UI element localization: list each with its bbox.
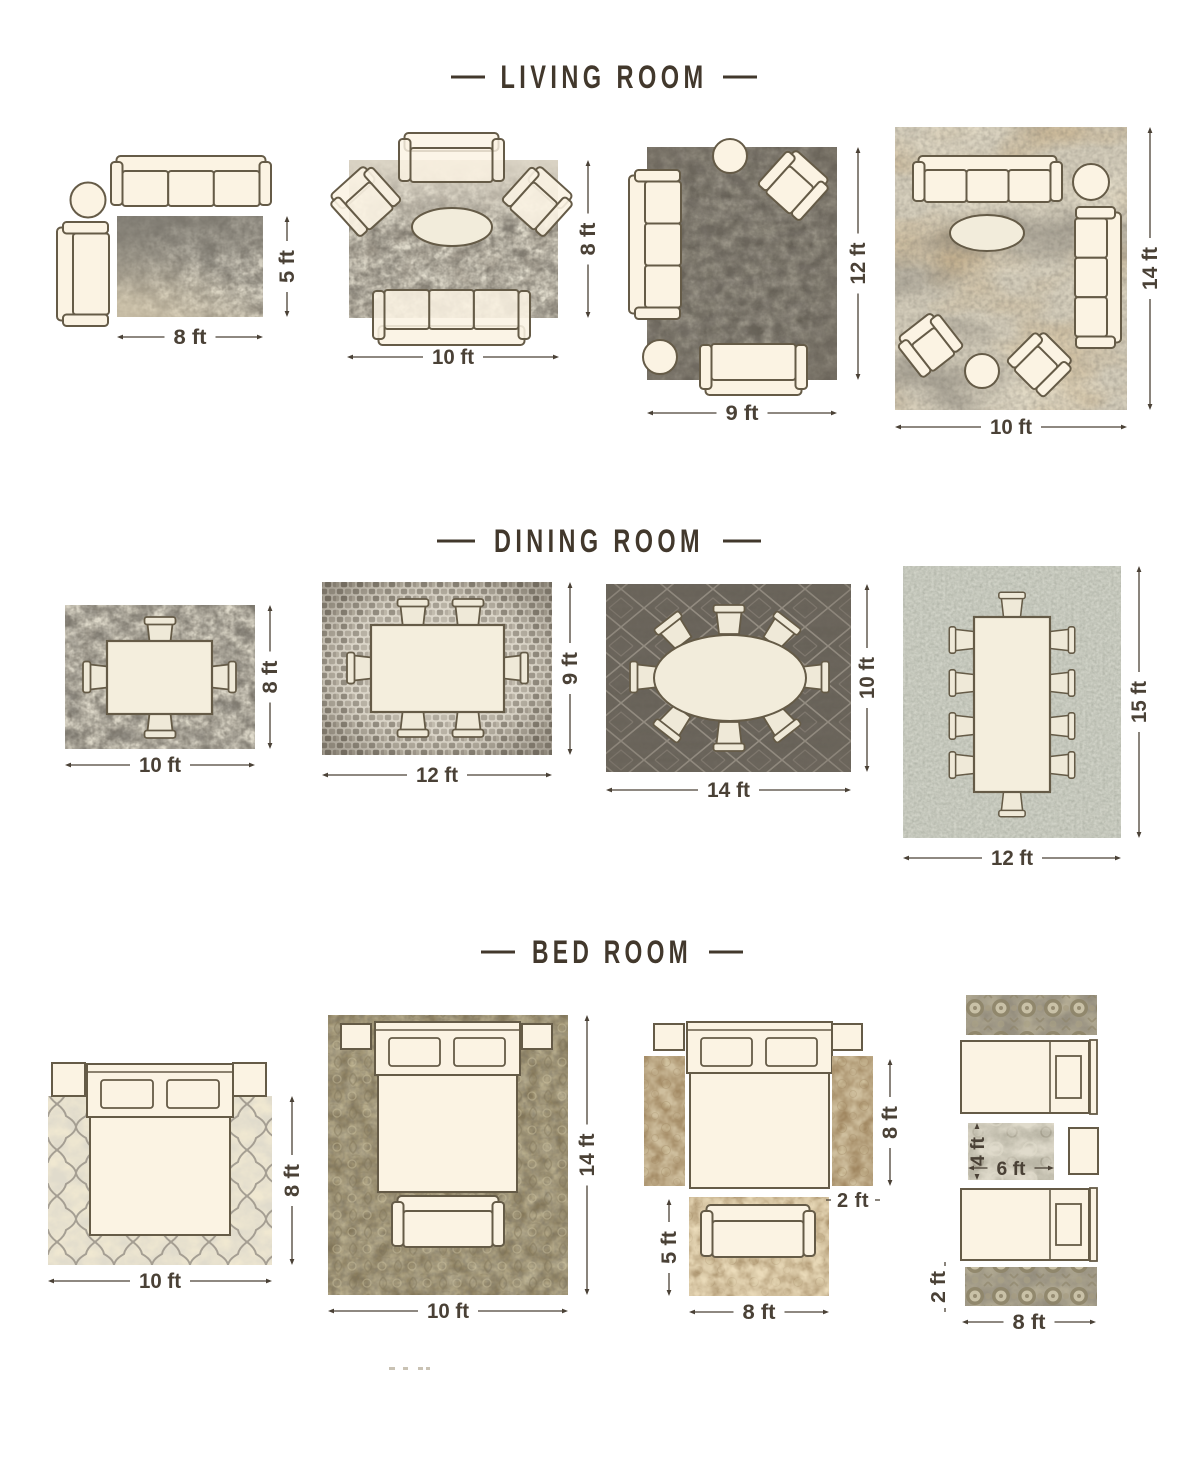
svg-text:12 ft: 12 ft (416, 764, 458, 787)
svg-text:5 ft: 5 ft (658, 1231, 681, 1264)
svg-text:9 ft: 9 ft (726, 402, 759, 425)
svg-text:BED ROOM: BED ROOM (532, 934, 692, 970)
svg-text:8 ft: 8 ft (259, 660, 282, 693)
svg-text:2 ft: 2 ft (927, 1271, 950, 1303)
svg-text:12 ft: 12 ft (991, 847, 1033, 870)
svg-text:8 ft: 8 ft (174, 326, 207, 349)
svg-text:4 ft: 4 ft (968, 1136, 989, 1166)
svg-text:8 ft: 8 ft (879, 1106, 902, 1139)
svg-text:5 ft: 5 ft (276, 250, 299, 283)
svg-text:DINING ROOM: DINING ROOM (494, 523, 704, 559)
svg-text:8 ft: 8 ft (743, 1301, 776, 1324)
svg-text:12 ft: 12 ft (847, 243, 870, 285)
svg-text:10 ft: 10 ft (139, 754, 181, 777)
svg-text:15 ft: 15 ft (1128, 681, 1151, 723)
svg-text:10 ft: 10 ft (432, 346, 474, 369)
svg-text:14 ft: 14 ft (576, 1134, 599, 1177)
svg-text:8 ft: 8 ft (577, 222, 600, 255)
svg-text:10 ft: 10 ft (990, 416, 1032, 439)
svg-text:14 ft: 14 ft (1139, 247, 1162, 290)
svg-text:9 ft: 9 ft (559, 652, 582, 685)
svg-text:10 ft: 10 ft (856, 657, 879, 699)
svg-text:LIVING ROOM: LIVING ROOM (501, 59, 708, 95)
svg-text:14 ft: 14 ft (707, 779, 750, 802)
svg-text:8 ft: 8 ft (281, 1164, 304, 1197)
svg-text:2 ft: 2 ft (837, 1189, 869, 1212)
svg-text:8 ft: 8 ft (1013, 1311, 1046, 1334)
svg-text:10 ft: 10 ft (427, 1300, 469, 1323)
svg-text:6 ft: 6 ft (997, 1159, 1027, 1180)
svg-text:10 ft: 10 ft (139, 1270, 181, 1293)
